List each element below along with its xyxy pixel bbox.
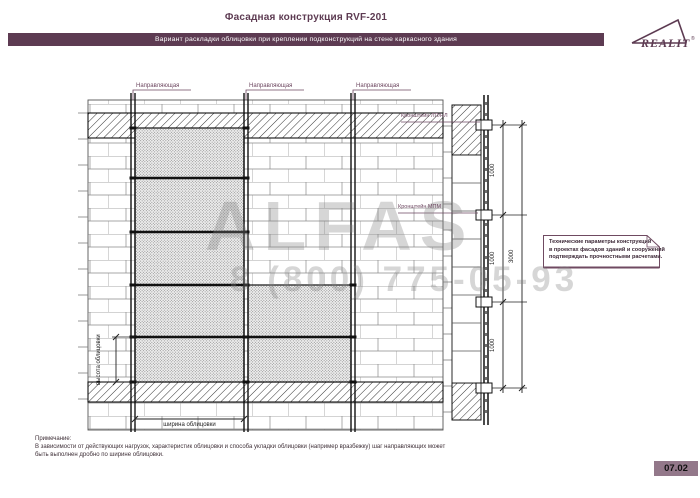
footnote-line-1: В зависимости от действующих нагрузок, х…	[35, 444, 445, 450]
bracket-label-top: Кронштейн ЛП/НЛ	[401, 113, 448, 119]
catalog-page: Фасадная конструкция RVF-201 Вариант рас…	[0, 0, 700, 498]
watermark-text: ALFAS	[205, 186, 474, 266]
note-line-3: подтверждать прочностными расчетами.	[549, 254, 665, 262]
height-dim-label: высота облицовки	[96, 334, 103, 385]
page-number-badge: 07.02	[654, 461, 698, 476]
rail-label-leaders	[133, 90, 411, 100]
width-dim-label: ширина облицовки	[135, 422, 244, 428]
bottom-slab-band	[88, 382, 443, 402]
rail-label-2: Направляющая	[249, 83, 292, 90]
dim-1000-b: 1000	[490, 252, 497, 265]
dim-1000-c: 1000	[490, 339, 497, 352]
note-line-2: в проектах фасадов зданий и сооружений	[549, 247, 665, 255]
bracket-label-mid: Кронштейн МПМ	[398, 204, 441, 210]
footnote-title: Примечание:	[35, 436, 71, 442]
footnote-line-2: быть выполнен дробно по ширине облицовки…	[35, 452, 164, 458]
note-line-1: Технические параметры конструкций	[549, 239, 665, 247]
watermark-phone: 8 (800) 775-05-93	[230, 260, 578, 300]
dim-1000-a: 1000	[490, 164, 497, 177]
note-box: Технические параметры конструкций в прое…	[543, 234, 660, 268]
rail-label-3: Направляющая	[356, 83, 399, 90]
rail-label-1: Направляющая	[136, 83, 179, 90]
dim-3000-total: 3000	[509, 250, 516, 263]
